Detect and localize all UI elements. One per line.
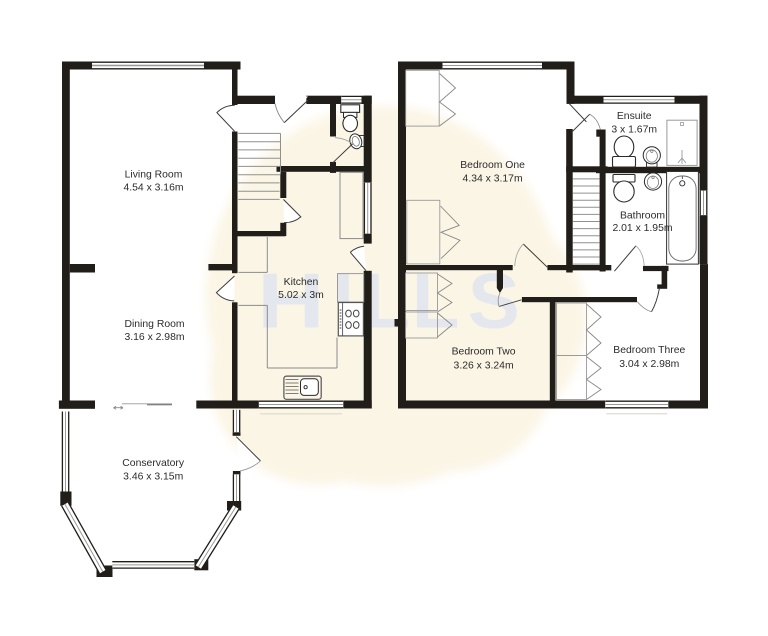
svg-text:Dining Room: Dining Room — [124, 319, 184, 330]
svg-text:2.01 x 1.95m: 2.01 x 1.95m — [612, 223, 672, 234]
svg-text:Ensuite: Ensuite — [617, 111, 652, 122]
svg-text:Bedroom Three: Bedroom Three — [613, 345, 685, 356]
svg-text:3.16 x 2.98m: 3.16 x 2.98m — [124, 332, 184, 343]
svg-text:3 x 1.67m: 3 x 1.67m — [611, 125, 657, 136]
svg-text:Bedroom Two: Bedroom Two — [452, 346, 516, 357]
svg-text:Living Room: Living Room — [125, 170, 183, 181]
svg-text:3.04 x 2.98m: 3.04 x 2.98m — [619, 359, 679, 370]
svg-text:3.46 x 3.15m: 3.46 x 3.15m — [123, 472, 183, 483]
svg-text:Bedroom One: Bedroom One — [460, 160, 525, 171]
svg-text:Kitchen: Kitchen — [284, 277, 319, 288]
svg-text:4.34 x 3.17m: 4.34 x 3.17m — [463, 174, 523, 185]
svg-text:3.26 x 3.24m: 3.26 x 3.24m — [454, 360, 514, 371]
svg-text:Bathroom: Bathroom — [620, 210, 665, 221]
svg-text:4.54 x 3.16m: 4.54 x 3.16m — [123, 183, 183, 194]
svg-text:5.02 x 3m: 5.02 x 3m — [278, 290, 324, 301]
svg-text:Conservatory: Conservatory — [122, 458, 185, 469]
